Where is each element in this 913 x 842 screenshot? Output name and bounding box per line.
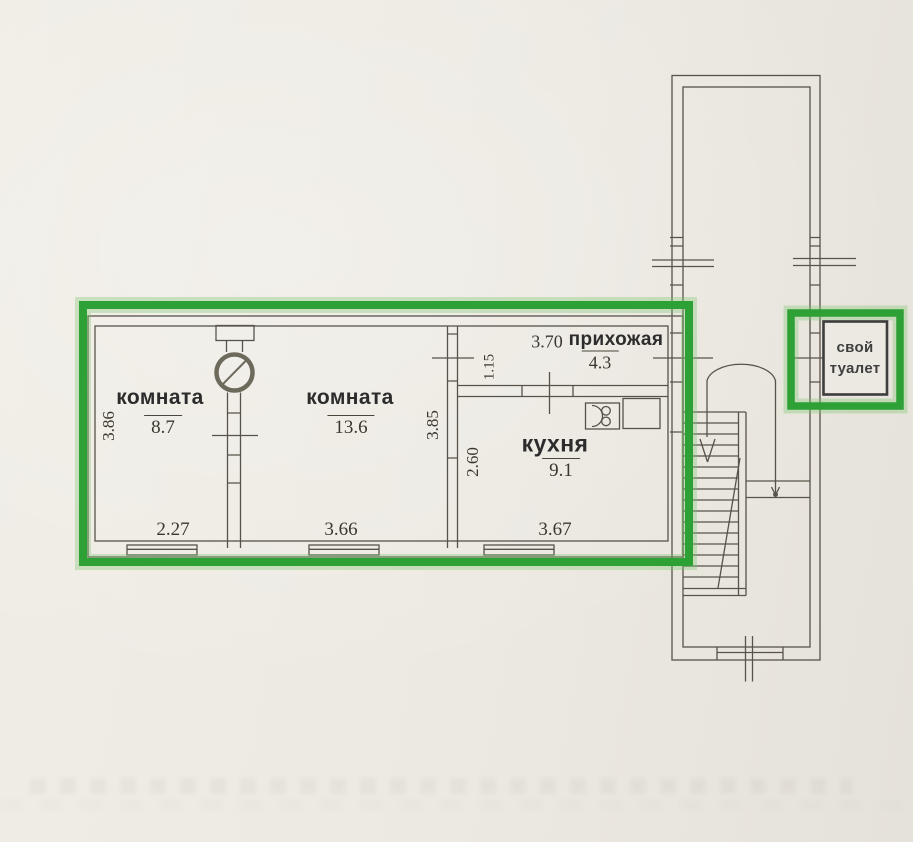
room1-label: комната	[116, 386, 203, 410]
kitchen-counter	[623, 399, 660, 429]
stove-icon	[586, 403, 620, 429]
highlight-frames	[83, 305, 900, 562]
stairs-symbol	[683, 412, 810, 596]
paper-bleed-through-2	[0, 800, 913, 810]
chimney-symbol	[216, 326, 254, 341]
room-partition-with-furnace	[212, 326, 258, 549]
room2-area: 13.6	[327, 415, 374, 439]
toilet-annotation: свой туалет	[823, 321, 887, 395]
hallway-width-dim: 3.70	[531, 332, 563, 353]
hallway-area: 4.3	[582, 351, 619, 374]
room1-height-dim: 3.86	[99, 411, 119, 441]
stair-down-arrow	[700, 439, 715, 462]
room2-label: комната	[306, 386, 393, 410]
kitchen-width-dim: 3.67	[538, 519, 571, 541]
room1-width-dim: 2.27	[156, 519, 189, 541]
kitchen-area: 9.1	[542, 458, 580, 482]
kitchen-label: кухня	[522, 431, 589, 458]
room1-area: 8.7	[144, 415, 182, 439]
window-symbol	[127, 545, 554, 555]
scanned-floor-plan-page: комната 8.7 3.86 2.27 комната 13.6 3.85 …	[0, 0, 913, 842]
toilet-annotation-line1: свой	[837, 337, 874, 358]
hallway-height-dim: 1.15	[482, 354, 499, 380]
floor-plan-drawing	[0, 0, 913, 842]
room2-width-dim: 3.66	[324, 519, 357, 541]
toilet-annotation-line2: туалет	[830, 358, 881, 379]
room2-height-dim: 3.85	[423, 410, 443, 440]
paper-bleed-through	[30, 778, 853, 794]
entry-path-arrow	[700, 364, 780, 496]
kitchen-height-dim: 2.60	[463, 447, 483, 477]
hallway-label: прихожая	[569, 329, 664, 351]
